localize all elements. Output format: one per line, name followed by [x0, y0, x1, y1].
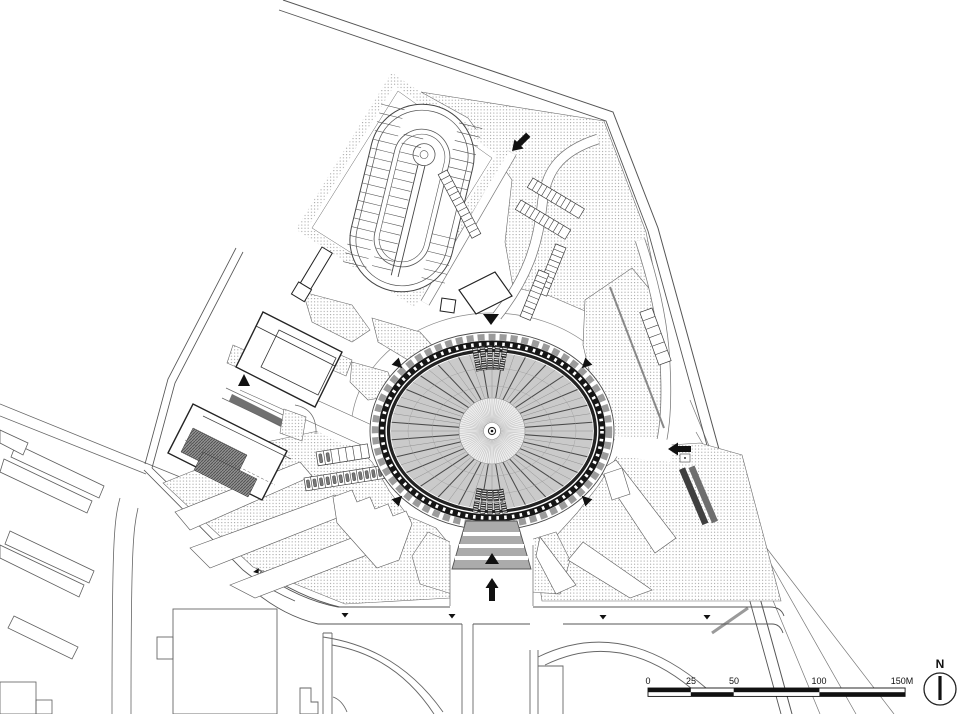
entrance-stair-fan [452, 521, 531, 569]
scale-bar: 0 25 50 100 150M [645, 676, 913, 696]
north-compass: N [924, 657, 956, 705]
scale-label-150: 150M [891, 676, 914, 686]
north-label: N [936, 657, 945, 671]
arena-mast [491, 430, 494, 433]
enclosure-edge-building [291, 246, 333, 302]
scale-label-50: 50 [729, 676, 739, 686]
context-buildings [0, 430, 104, 714]
scale-label-100: 100 [811, 676, 826, 686]
site-plan-svg: 0 25 50 100 150M N [0, 0, 960, 714]
site-plan-image: 0 25 50 100 150M N [0, 0, 960, 714]
context-large-building [173, 609, 277, 714]
scale-label-25: 25 [686, 676, 696, 686]
arena-building [370, 332, 614, 530]
scale-label-0: 0 [645, 676, 650, 686]
